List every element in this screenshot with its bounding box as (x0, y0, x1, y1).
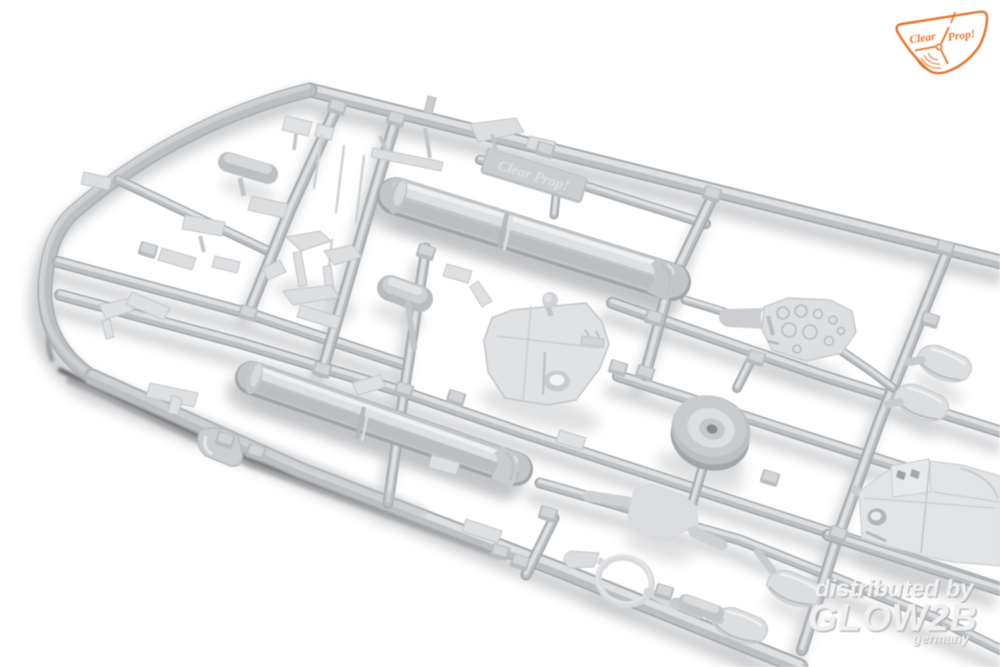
svg-text:germany: germany (912, 631, 971, 646)
